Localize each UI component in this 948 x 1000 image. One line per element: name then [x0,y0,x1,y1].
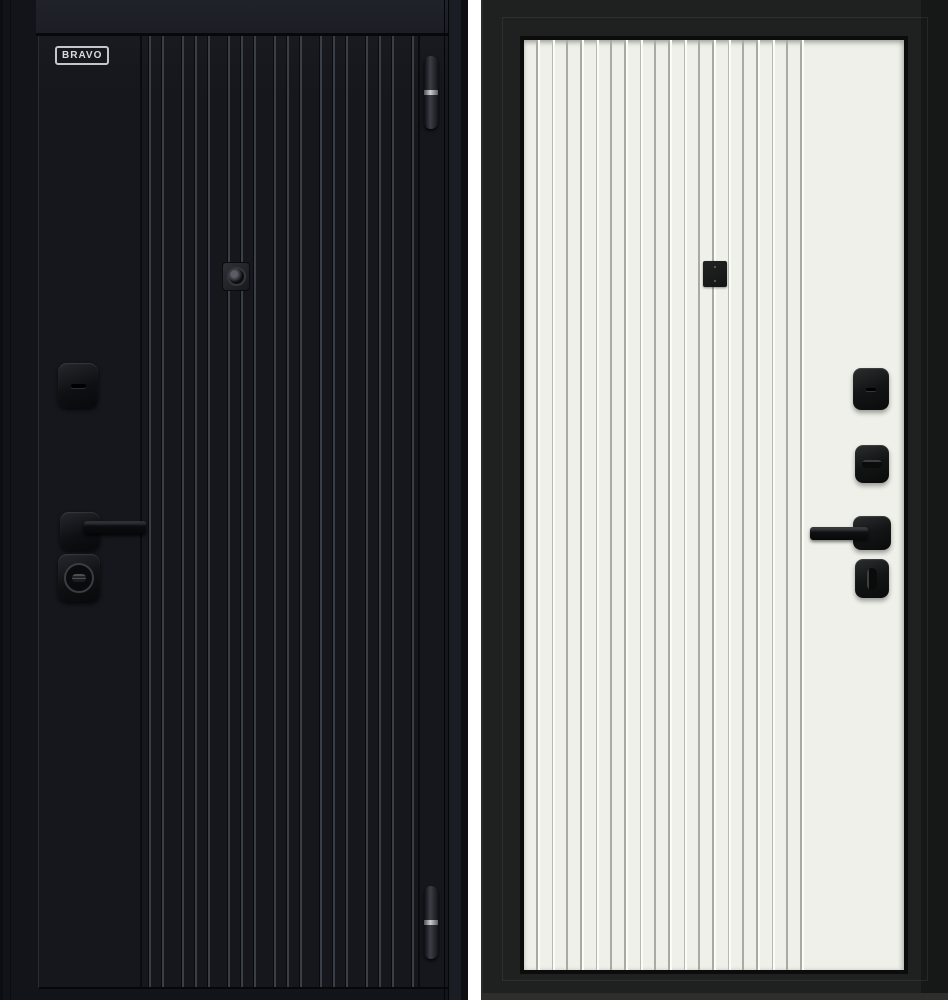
door-leaf-interior [524,40,904,970]
thumbturn-lock [855,559,889,598]
door-interior-view [481,0,948,1000]
night-latch-escutcheon [855,445,889,483]
door-edge-seam [444,0,445,1000]
brand-logo: BRAVO [55,46,109,65]
vertical-groove-panel [140,36,420,987]
cylinder-knob [72,574,86,582]
hinge-accent-band [424,920,438,925]
cylinder-ring [64,563,94,593]
hinge-accent-band [424,90,438,95]
keyhole-slot [71,384,86,388]
latch-oval-knob [862,460,882,468]
door-handle-lever [810,527,868,540]
keyhole-escutcheon [58,363,98,408]
keyhole-escutcheon [853,368,889,410]
hinge-bottom [424,886,438,959]
frame-bottom-edge [481,993,948,1000]
door-frame-right-stile [448,0,468,1000]
vertical-groove-panel [528,40,806,970]
peephole-plate [703,261,727,287]
door-handle-lever [84,521,146,534]
peephole-lens [227,267,246,286]
thumbturn-knob [867,568,877,590]
door-exterior-view: BRAVO [0,0,468,1000]
door-frame-top-band [36,0,448,36]
peephole-screw [714,280,716,282]
cylinder-lock [58,554,100,602]
door-leaf-exterior [38,36,449,989]
peephole-screw [714,266,716,268]
keyhole-slot [866,388,876,391]
hinge-top [424,56,438,129]
peephole-icon [222,262,250,291]
